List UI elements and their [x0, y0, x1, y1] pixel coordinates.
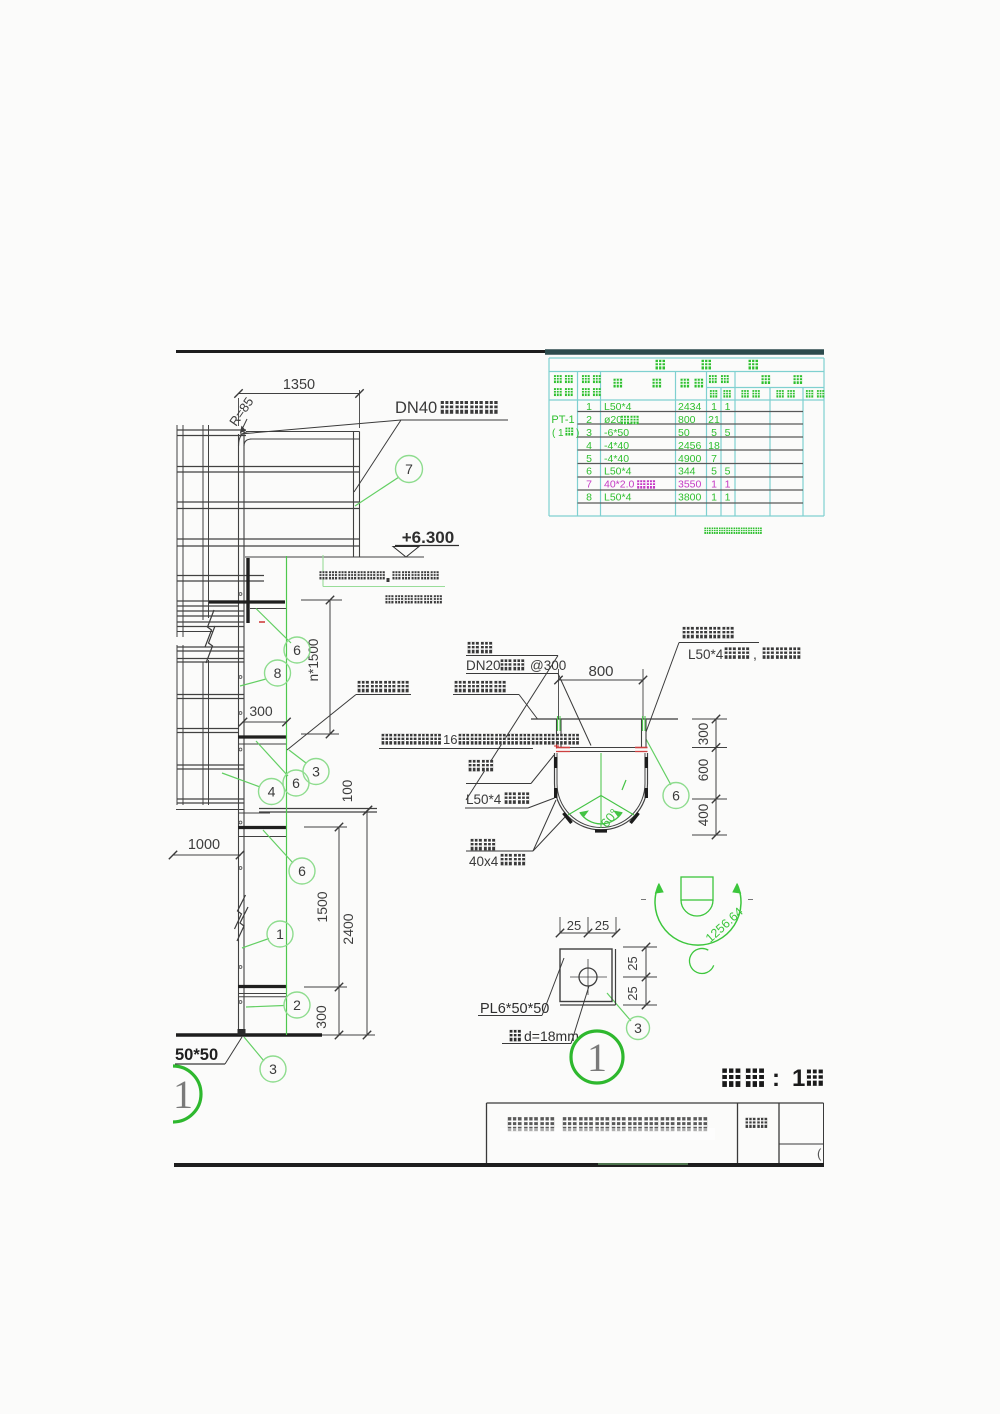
svg-text:6: 6	[292, 775, 300, 791]
svg-text:7: 7	[586, 479, 592, 491]
svg-text:344: 344	[678, 466, 696, 478]
svg-text:L50*4: L50*4	[688, 647, 724, 662]
svg-text:800: 800	[678, 414, 696, 426]
svg-text:300: 300	[313, 1005, 329, 1029]
svg-text:1: 1	[711, 479, 717, 491]
svg-text:L50*4: L50*4	[604, 401, 632, 413]
svg-text:8: 8	[274, 665, 282, 681]
svg-text:1: 1	[725, 401, 731, 413]
svg-text:5: 5	[711, 466, 717, 478]
svg-text:6: 6	[672, 788, 680, 804]
svg-text:18: 18	[708, 440, 720, 452]
svg-text:1350: 1350	[283, 377, 315, 393]
svg-text:600: 600	[696, 759, 711, 782]
svg-text:1: 1	[587, 1035, 607, 1080]
svg-text:DN20: DN20	[466, 658, 501, 673]
svg-text:7: 7	[405, 461, 413, 477]
svg-text:4: 4	[586, 440, 592, 452]
svg-text:3: 3	[269, 1061, 277, 1077]
svg-text:3550: 3550	[678, 479, 702, 491]
svg-text:100: 100	[340, 780, 355, 803]
svg-text:-6*50: -6*50	[604, 427, 629, 439]
svg-text::: :	[772, 1065, 780, 1092]
svg-text:(: (	[817, 1146, 822, 1161]
svg-text:2400: 2400	[340, 913, 356, 944]
svg-text:5: 5	[725, 427, 731, 439]
svg-text:300: 300	[249, 703, 273, 719]
svg-text:1: 1	[586, 401, 592, 413]
svg-text:2434: 2434	[678, 401, 702, 413]
svg-text:@300: @300	[530, 658, 566, 673]
svg-text:1: 1	[558, 428, 564, 439]
svg-text:+6.300: +6.300	[402, 528, 454, 547]
svg-text:2: 2	[586, 414, 592, 426]
svg-text:5: 5	[586, 453, 592, 465]
svg-text:1: 1	[725, 479, 731, 491]
svg-text:6: 6	[298, 863, 306, 879]
svg-text:d=18mm: d=18mm	[524, 1028, 579, 1044]
svg-text:25: 25	[595, 918, 609, 933]
svg-text:1: 1	[725, 492, 731, 504]
svg-text:1500: 1500	[314, 891, 330, 922]
svg-text:50: 50	[678, 427, 690, 439]
svg-text:400: 400	[696, 804, 711, 827]
svg-text:800: 800	[588, 663, 613, 680]
svg-text:1: 1	[711, 492, 717, 504]
svg-text:40x4: 40x4	[469, 854, 499, 869]
svg-text:25: 25	[567, 918, 581, 933]
svg-text:25: 25	[625, 956, 640, 970]
svg-text:L50*4: L50*4	[604, 466, 632, 478]
svg-text:4900: 4900	[678, 453, 702, 465]
svg-text:L50*4: L50*4	[604, 492, 632, 504]
svg-text:PL6*50*50: PL6*50*50	[480, 1001, 549, 1017]
svg-text:1: 1	[276, 926, 284, 942]
svg-text:5: 5	[711, 427, 717, 439]
svg-text:): )	[576, 428, 579, 439]
svg-text:1: 1	[173, 1072, 193, 1117]
svg-text:1: 1	[711, 401, 717, 413]
svg-text:,: ,	[753, 646, 757, 662]
svg-text:40*2.0: 40*2.0	[604, 479, 635, 491]
svg-text:ø20: ø20	[604, 414, 622, 426]
svg-text:3: 3	[312, 764, 320, 780]
svg-text:L50*4: L50*4	[466, 792, 502, 807]
svg-text:6: 6	[586, 466, 592, 478]
svg-text:-4*40: -4*40	[604, 453, 629, 465]
svg-text:2456: 2456	[678, 440, 702, 452]
svg-text:25: 25	[625, 986, 640, 1000]
svg-text:3800: 3800	[678, 492, 702, 504]
svg-text:300: 300	[696, 723, 711, 746]
svg-text:7: 7	[711, 453, 717, 465]
svg-text:8: 8	[586, 492, 592, 504]
svg-text:16: 16	[443, 732, 457, 747]
svg-text:1000: 1000	[188, 837, 220, 853]
svg-text:2: 2	[293, 997, 301, 1013]
svg-text:4: 4	[268, 784, 276, 800]
svg-text:-4*40: -4*40	[604, 440, 629, 452]
svg-text:3: 3	[634, 1020, 642, 1036]
svg-text:DN40: DN40	[395, 399, 437, 417]
svg-text:6: 6	[293, 642, 301, 658]
svg-text:1: 1	[792, 1065, 805, 1092]
svg-text:PT-1: PT-1	[551, 414, 574, 426]
svg-text:5: 5	[725, 466, 731, 478]
svg-text:3: 3	[586, 427, 592, 439]
svg-text:50*50: 50*50	[175, 1046, 218, 1064]
svg-text:21: 21	[708, 414, 720, 426]
